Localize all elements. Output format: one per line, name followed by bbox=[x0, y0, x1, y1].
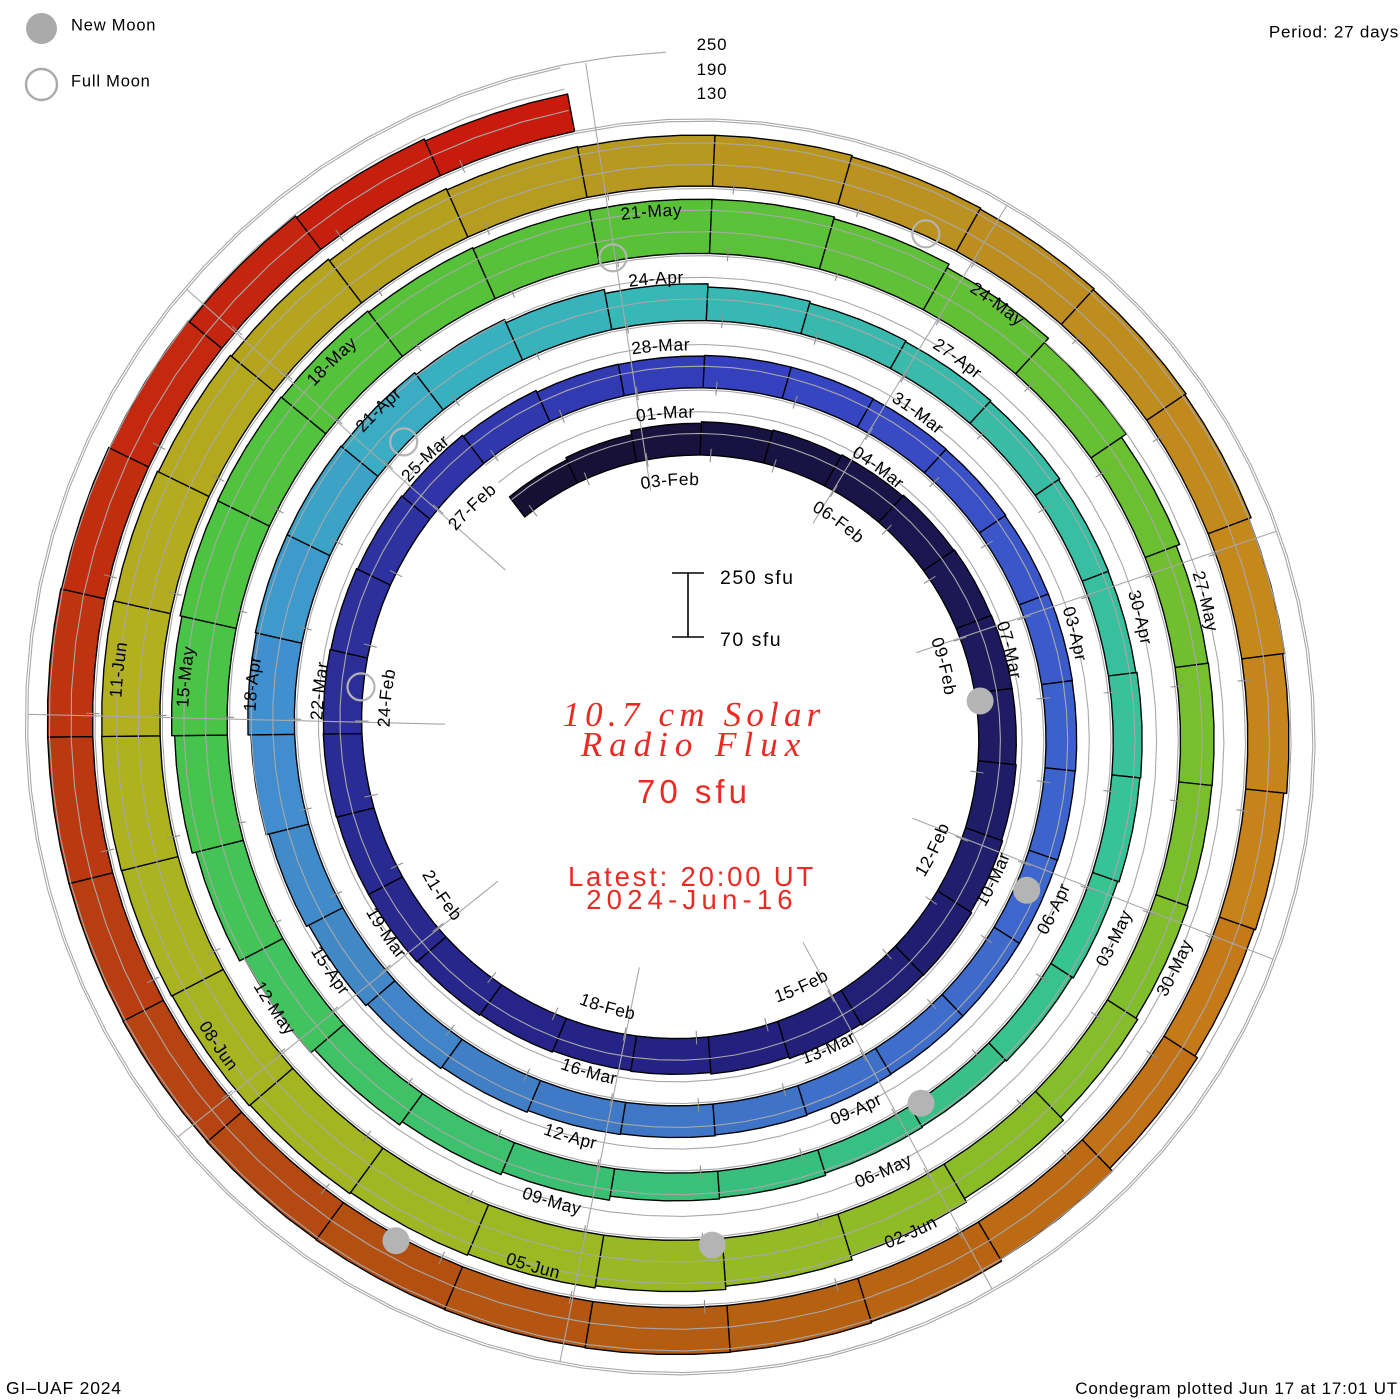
svg-text:M: M bbox=[174, 665, 195, 682]
svg-text:2: 2 bbox=[306, 710, 326, 720]
svg-text:a: a bbox=[662, 200, 673, 220]
svg-text:2024-Jun-16: 2024-Jun-16 bbox=[586, 884, 798, 915]
svg-text:Radio Flux: Radio Flux bbox=[580, 725, 808, 764]
svg-text:GI–UAF 2024: GI–UAF 2024 bbox=[6, 1378, 122, 1398]
svg-text:M: M bbox=[647, 200, 663, 221]
svg-text:1: 1 bbox=[172, 697, 192, 708]
svg-text:a: a bbox=[678, 402, 688, 422]
svg-text:1: 1 bbox=[239, 701, 259, 712]
svg-text:New Moon: New Moon bbox=[71, 17, 156, 35]
svg-text:250: 250 bbox=[697, 35, 728, 54]
svg-text:70 sfu: 70 sfu bbox=[720, 629, 782, 651]
svg-text:70 sfu: 70 sfu bbox=[637, 773, 751, 810]
svg-text:Full Moon: Full Moon bbox=[71, 73, 151, 91]
svg-text:250 sfu: 250 sfu bbox=[720, 567, 794, 589]
svg-text:y: y bbox=[673, 200, 682, 220]
svg-text:r: r bbox=[688, 402, 694, 422]
svg-text:Period: 27 days: Period: 27 days bbox=[1269, 23, 1399, 42]
svg-text:2: 2 bbox=[374, 717, 394, 727]
svg-text:b: b bbox=[689, 469, 699, 489]
svg-text:130: 130 bbox=[697, 84, 728, 103]
svg-text:e: e bbox=[679, 469, 689, 489]
svg-text:M: M bbox=[658, 335, 674, 356]
svg-text:r: r bbox=[684, 334, 690, 354]
svg-text:M: M bbox=[308, 678, 330, 695]
svg-text:F: F bbox=[667, 469, 679, 490]
svg-text:p: p bbox=[667, 267, 677, 287]
svg-text:a: a bbox=[673, 334, 683, 354]
svg-text:Condegram plotted Jun 17 at 17: Condegram plotted Jun 17 at 17:01 UT bbox=[1075, 1379, 1398, 1398]
svg-text:A: A bbox=[654, 268, 667, 289]
svg-text:190: 190 bbox=[697, 60, 728, 79]
svg-text:M: M bbox=[662, 402, 678, 423]
svg-text:r: r bbox=[677, 267, 683, 287]
